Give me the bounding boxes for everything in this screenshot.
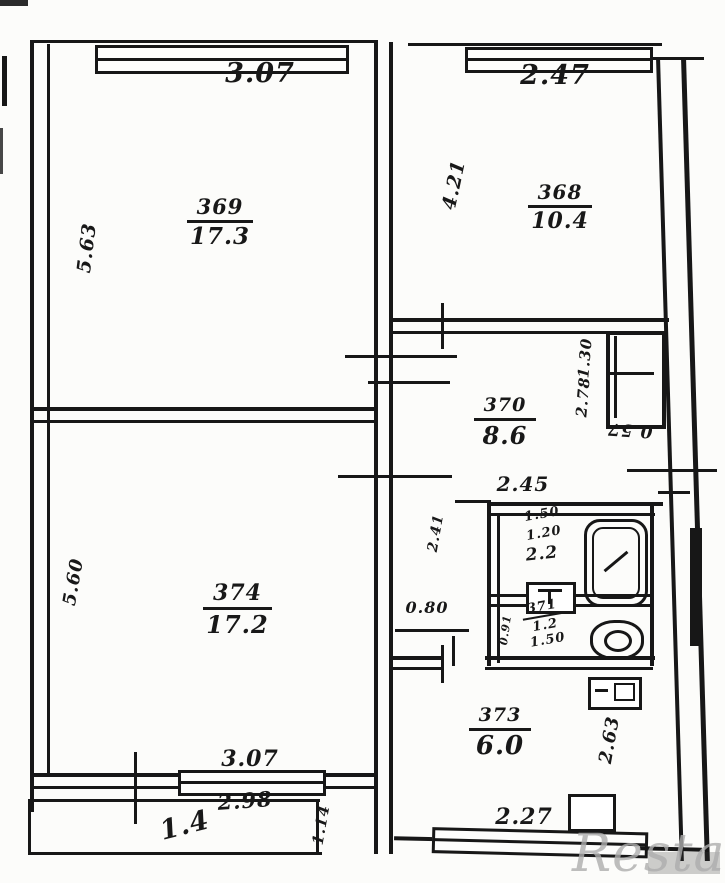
room-label-369: 369 17.3 <box>165 196 275 249</box>
wall-kitchen-top-c <box>393 667 443 670</box>
wall-369-374-b <box>32 420 376 423</box>
dim-368-side: 4.21 <box>435 143 475 226</box>
wall-369-374-a <box>32 407 376 411</box>
wall-bath-left-a <box>487 502 491 666</box>
room-label-370: 370 8.6 <box>455 396 555 448</box>
room-area: 6.0 <box>445 733 555 760</box>
room-label-368: 368 10.4 <box>505 182 615 233</box>
wall-368-bottom-a <box>393 318 669 322</box>
balcony-area: 1.4 <box>138 802 232 851</box>
room-label-374: 374 17.2 <box>180 582 295 637</box>
wall-right-outer <box>656 57 710 861</box>
wall-central-b <box>389 42 393 854</box>
closet-inner-line <box>614 336 617 418</box>
sink-detail <box>595 689 608 692</box>
door-mark <box>338 475 452 478</box>
wall-bath-right <box>650 502 654 666</box>
door-lintel <box>455 500 491 503</box>
watermark: Restate <box>572 824 725 883</box>
room-area: 17.3 <box>165 225 275 249</box>
door-mark <box>395 629 469 632</box>
door-mark <box>441 303 444 349</box>
wall-right-thick <box>690 528 702 646</box>
window-glass-line <box>180 781 324 784</box>
wall-bath-top-b <box>487 513 655 516</box>
wall-left-outer <box>30 40 34 812</box>
dim-balcony-side: 1.14 <box>309 797 334 853</box>
dim-374-bottom: 3.07 <box>195 748 305 771</box>
door-mark <box>441 645 444 683</box>
wall-stub <box>394 836 434 841</box>
room-area: 10.4 <box>505 210 615 233</box>
wall-kitchen-top-a <box>393 656 443 660</box>
dim-bath-2: 1.20 <box>517 523 571 545</box>
dim-374-height: 5.60 <box>56 541 92 624</box>
sink-basin <box>614 683 635 701</box>
room-number: 370 <box>474 396 537 421</box>
room-label-373: 373 6.0 <box>445 706 555 760</box>
room-number: 368 <box>528 182 593 208</box>
scan-artifact <box>0 0 28 6</box>
room-number: 373 <box>469 706 532 731</box>
room-number: 374 <box>203 582 272 610</box>
dim-hall-width: 2.45 <box>478 474 568 495</box>
room-number: 369 <box>187 196 254 223</box>
door-mark <box>658 491 690 494</box>
dim-wc-passage: 0.80 <box>394 600 460 617</box>
wall-central-a <box>374 42 378 854</box>
room-area: 8.6 <box>455 423 555 448</box>
dim-bath-1: 1.50 <box>515 504 569 526</box>
kitchen-sink-icon <box>588 677 642 710</box>
scan-artifact <box>2 56 7 106</box>
bath-area: 2.2 <box>515 543 569 566</box>
toilet-icon <box>590 620 644 660</box>
dim-kitchen-window: 2.27 <box>472 806 576 829</box>
wall-top-left <box>30 40 378 43</box>
room-label-371: 371 1.2 1.50 <box>510 595 579 653</box>
scan-artifact <box>0 128 3 174</box>
dim-369-height: 5.63 <box>71 207 105 289</box>
door-mark <box>345 355 457 358</box>
door-mark <box>627 469 717 472</box>
bathtub-icon <box>584 519 648 607</box>
balcony-edge-bottom <box>28 852 322 855</box>
wall-kitchen-top-d <box>485 667 653 670</box>
dim-bath-side: 2.41 <box>422 504 449 562</box>
balcony-edge-left <box>28 799 31 855</box>
wall-top-right <box>408 43 662 46</box>
door-mark <box>368 381 450 384</box>
toilet-bowl <box>604 630 632 652</box>
dim-closet-front: 0.57 <box>595 418 664 441</box>
dim-top-left: 3.07 <box>200 60 320 88</box>
door-mark <box>452 636 455 666</box>
wall-bath-top-a <box>487 502 663 506</box>
dim-top-right: 2.47 <box>495 62 615 90</box>
dim-closet-side: 2.78 <box>572 366 595 427</box>
dim-kitchen-side: 2.63 <box>595 707 626 774</box>
room-area: 17.2 <box>180 612 295 637</box>
floor-plan: 3.07 2.47 369 17.3 5.63 4.21 368 10.4 1.… <box>0 0 725 883</box>
